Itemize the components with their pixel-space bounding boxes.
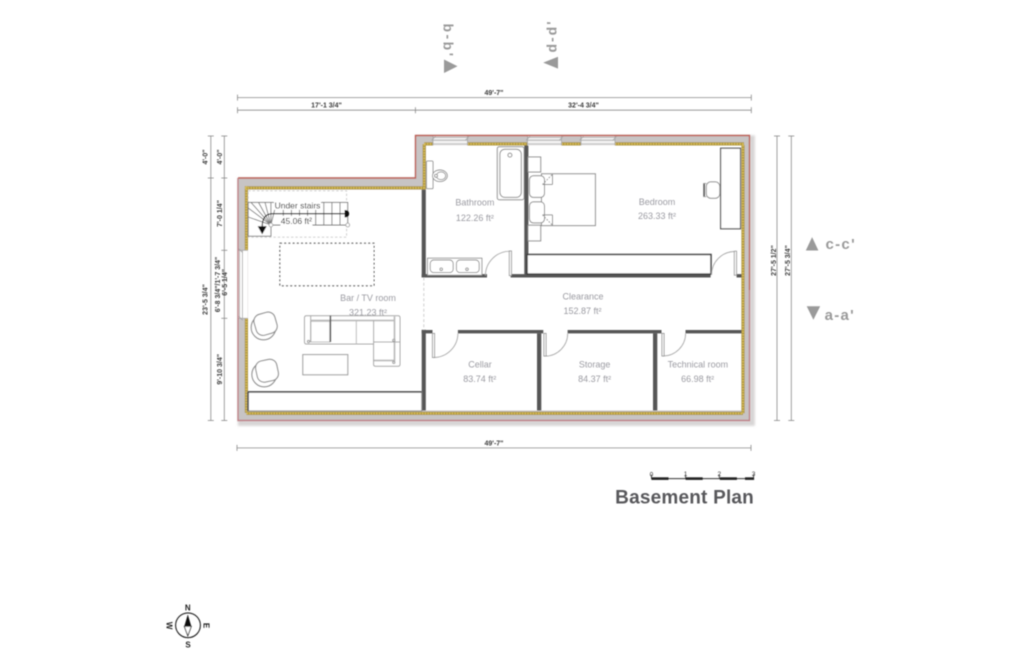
svg-text:6'-8 3/4"/1'-7 3/4": 6'-8 3/4"/1'-7 3/4" <box>215 257 222 313</box>
svg-text:17'-1 3/4": 17'-1 3/4" <box>311 102 342 109</box>
svg-text:45.06 ft²: 45.06 ft² <box>281 216 312 226</box>
svg-text:Bathroom: Bathroom <box>455 198 494 208</box>
svg-text:Technical room: Technical room <box>668 360 729 370</box>
svg-text:152.87 ft²: 152.87 ft² <box>563 306 601 316</box>
svg-text:66.98 ft²: 66.98 ft² <box>681 374 714 384</box>
svg-text:27'-5 3/4": 27'-5 3/4" <box>785 245 792 276</box>
svg-text:0: 0 <box>650 472 654 479</box>
svg-text:32'-4 3/4": 32'-4 3/4" <box>568 102 599 109</box>
svg-text:6'-5 1/4": 6'-5 1/4" <box>222 269 229 296</box>
svg-text:9'-10 3/4": 9'-10 3/4" <box>217 354 224 385</box>
svg-text:83.74 ft²: 83.74 ft² <box>463 374 496 384</box>
svg-text:c-c': c-c' <box>826 236 856 253</box>
svg-text:49'-7": 49'-7" <box>485 90 504 97</box>
svg-text:Basement Plan: Basement Plan <box>615 488 754 509</box>
svg-text:W: W <box>164 622 173 630</box>
svg-text:2: 2 <box>717 471 721 478</box>
svg-text:122.26 ft²: 122.26 ft² <box>456 213 494 223</box>
svg-text:a-a': a-a' <box>825 307 855 324</box>
svg-text:49'-7": 49'-7" <box>485 440 504 447</box>
svg-text:Bedroom: Bedroom <box>639 197 676 207</box>
svg-text:4'-0": 4'-0" <box>203 149 210 164</box>
svg-text:27'-5 1/2": 27'-5 1/2" <box>771 245 778 276</box>
svg-text:b-b': b-b' <box>441 23 457 58</box>
svg-text:1: 1 <box>684 471 688 478</box>
svg-text:7'-0 1/4": 7'-0 1/4" <box>217 200 224 227</box>
svg-text:4'-0": 4'-0" <box>217 149 224 164</box>
svg-text:N: N <box>185 604 191 613</box>
svg-text:23'-5 3/4": 23'-5 3/4" <box>203 284 210 315</box>
svg-text:263.33 ft²: 263.33 ft² <box>638 211 676 221</box>
svg-text:E: E <box>202 623 211 629</box>
svg-text:Under stairs: Under stairs <box>275 200 321 210</box>
svg-text:d-d': d-d' <box>544 19 560 52</box>
svg-text:S: S <box>185 640 191 649</box>
svg-text:Cellar: Cellar <box>468 360 492 370</box>
svg-text:3: 3 <box>752 471 756 478</box>
svg-text:Bar / TV room: Bar / TV room <box>340 293 396 303</box>
svg-text:Clearance: Clearance <box>562 292 603 302</box>
svg-text:84.37 ft²: 84.37 ft² <box>578 374 611 384</box>
svg-text:Storage: Storage <box>579 360 611 370</box>
